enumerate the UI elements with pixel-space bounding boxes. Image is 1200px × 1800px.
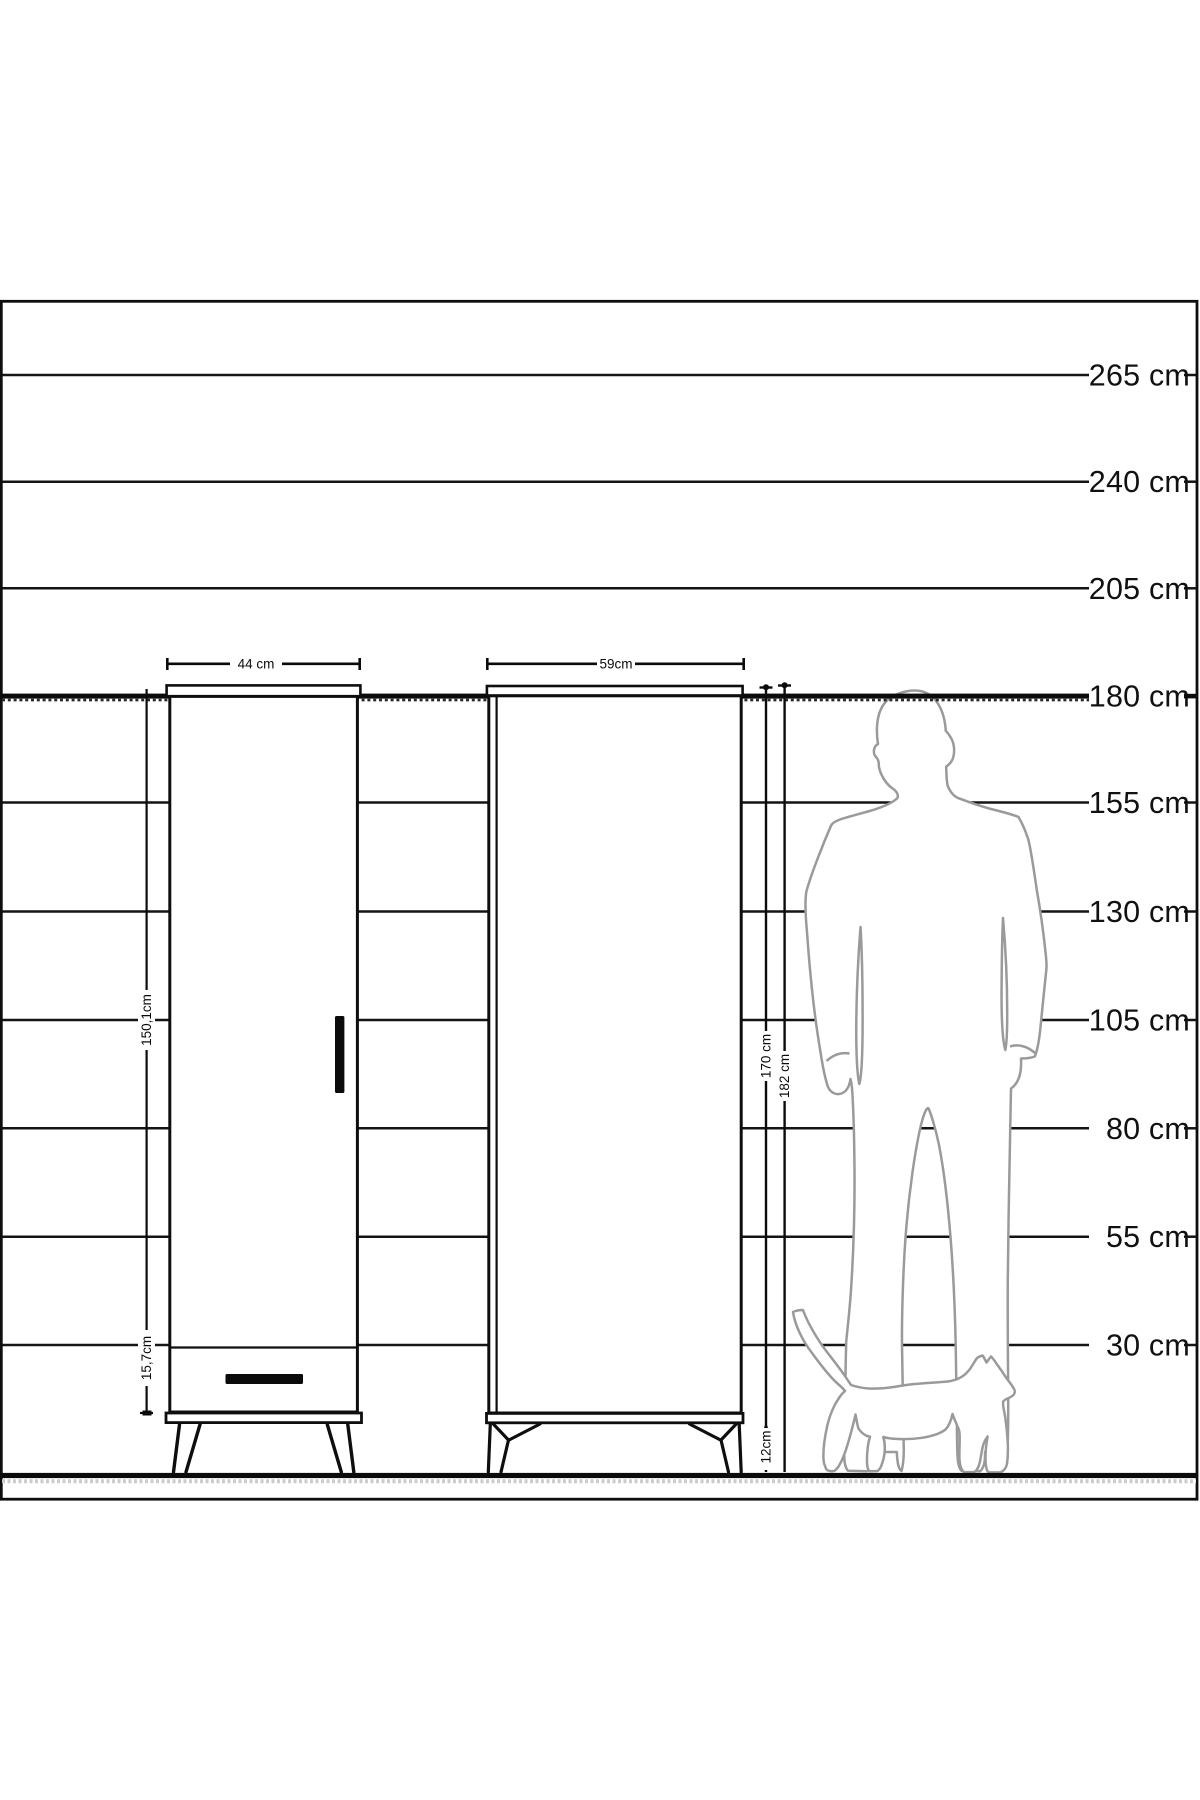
svg-text:130 cm: 130 cm bbox=[1089, 895, 1190, 929]
svg-text:265 cm: 265 cm bbox=[1089, 359, 1190, 393]
svg-text:240 cm: 240 cm bbox=[1089, 465, 1190, 499]
svg-text:44 cm: 44 cm bbox=[238, 657, 275, 672]
svg-text:205 cm: 205 cm bbox=[1089, 572, 1190, 606]
svg-text:80 cm: 80 cm bbox=[1106, 1112, 1190, 1146]
svg-text:15,7cm: 15,7cm bbox=[139, 1336, 154, 1380]
svg-text:105 cm: 105 cm bbox=[1089, 1004, 1190, 1038]
svg-text:180 cm: 180 cm bbox=[1089, 680, 1190, 714]
svg-text:30 cm: 30 cm bbox=[1106, 1329, 1190, 1363]
svg-text:150,1cm: 150,1cm bbox=[139, 994, 154, 1046]
svg-text:182 cm: 182 cm bbox=[777, 1054, 792, 1098]
svg-text:59cm: 59cm bbox=[599, 657, 632, 672]
svg-text:12cm: 12cm bbox=[759, 1430, 774, 1463]
svg-text:55 cm: 55 cm bbox=[1106, 1220, 1190, 1254]
svg-text:155 cm: 155 cm bbox=[1089, 786, 1190, 820]
svg-text:170 cm: 170 cm bbox=[759, 1034, 774, 1078]
